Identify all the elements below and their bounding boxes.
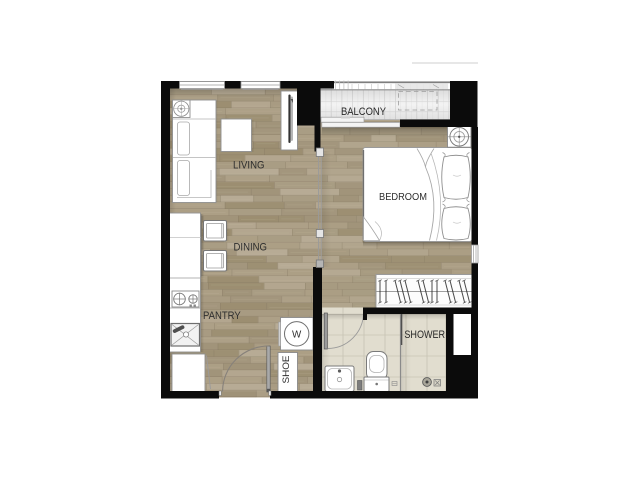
svg-text:DINING: DINING [234,242,268,254]
svg-text:SHOE: SHOE [281,356,292,384]
svg-text:SHOWER: SHOWER [404,329,445,341]
svg-text:PANTRY: PANTRY [203,310,241,322]
svg-text:BEDROOM: BEDROOM [379,192,427,203]
svg-text:W: W [292,329,302,340]
svg-text:BALCONY: BALCONY [341,106,386,118]
svg-text:LIVING: LIVING [233,159,265,171]
